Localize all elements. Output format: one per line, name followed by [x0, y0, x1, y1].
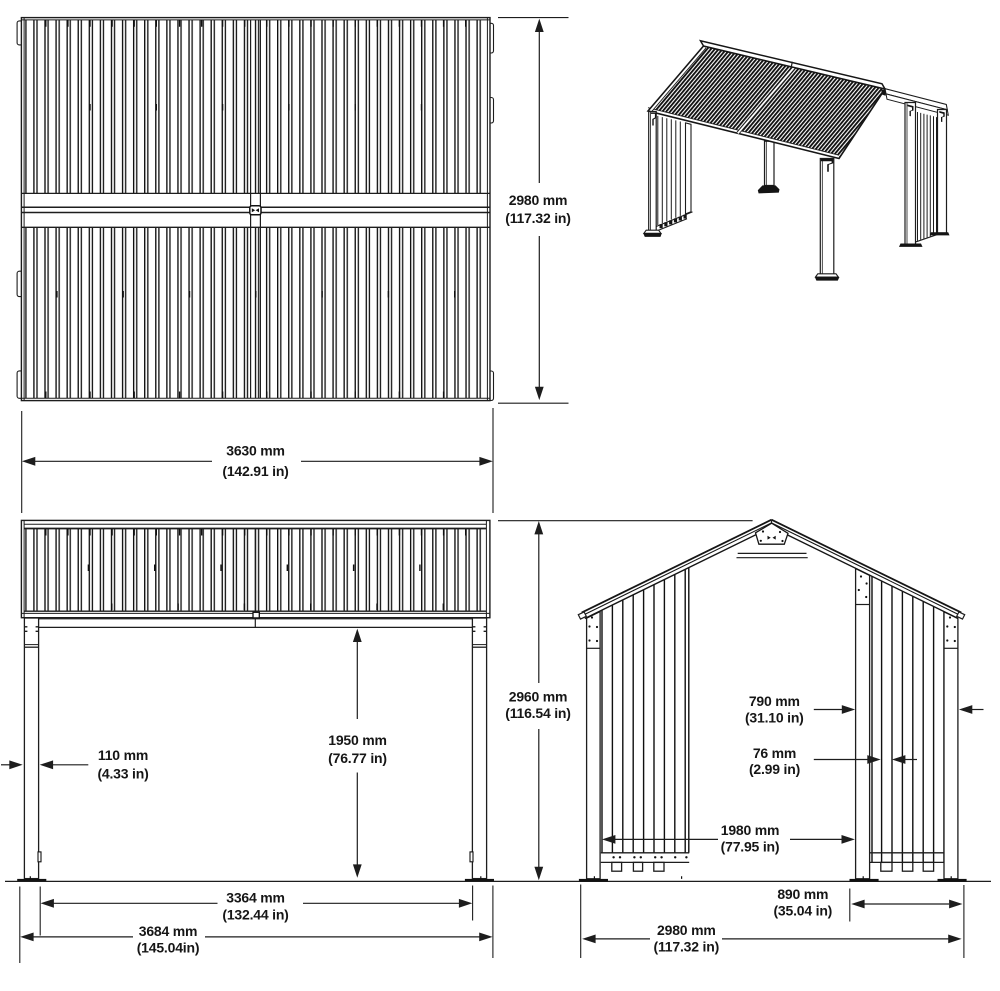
svg-text:(76.77 in): (76.77 in)	[328, 750, 387, 766]
svg-text:(142.91 in): (142.91 in)	[222, 463, 288, 479]
svg-text:76 mm: 76 mm	[753, 745, 796, 761]
svg-text:(4.33 in): (4.33 in)	[97, 765, 148, 781]
svg-text:(117.32 in): (117.32 in)	[505, 210, 571, 226]
svg-text:(2.99 in): (2.99 in)	[749, 761, 800, 777]
svg-text:3684 mm: 3684 mm	[139, 923, 198, 939]
svg-text:2980 mm: 2980 mm	[657, 922, 716, 938]
svg-text:3630 mm: 3630 mm	[226, 442, 285, 458]
svg-text:2980 mm: 2980 mm	[509, 192, 568, 208]
svg-text:(77.95 in): (77.95 in)	[721, 839, 780, 855]
svg-text:(31.10 in): (31.10 in)	[745, 710, 804, 726]
svg-text:(132.44 in): (132.44 in)	[222, 906, 288, 922]
svg-text:890 mm: 890 mm	[777, 886, 828, 902]
svg-text:(145.04in): (145.04in)	[137, 940, 200, 956]
svg-text:110 mm: 110 mm	[98, 747, 148, 763]
svg-text:1980 mm: 1980 mm	[721, 822, 780, 838]
svg-text:(116.54 in): (116.54 in)	[505, 705, 571, 721]
svg-text:(117.32 in): (117.32 in)	[654, 938, 720, 954]
svg-text:3364 mm: 3364 mm	[226, 889, 285, 905]
svg-text:790 mm: 790 mm	[749, 693, 800, 709]
svg-text:2960 mm: 2960 mm	[509, 689, 568, 705]
svg-text:1950 mm: 1950 mm	[328, 732, 387, 748]
svg-text:(35.04 in): (35.04 in)	[773, 903, 832, 919]
